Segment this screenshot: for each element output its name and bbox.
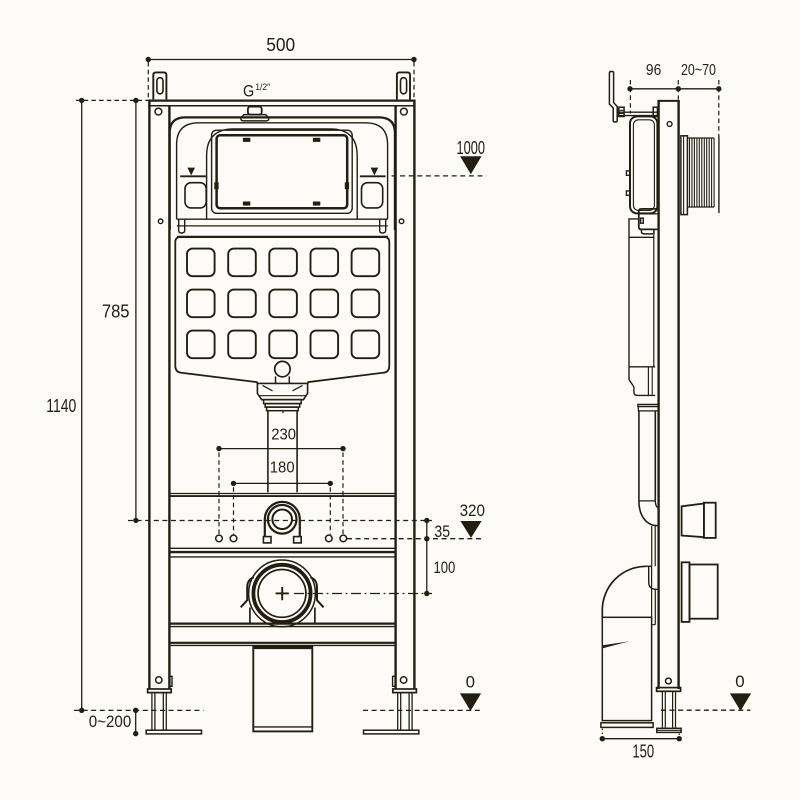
svg-text:100: 100 bbox=[433, 558, 455, 577]
svg-text:150: 150 bbox=[632, 742, 654, 762]
svg-text:0: 0 bbox=[735, 672, 744, 691]
svg-text:0: 0 bbox=[466, 673, 475, 692]
svg-text:96: 96 bbox=[646, 62, 661, 79]
svg-text:35: 35 bbox=[434, 522, 450, 541]
svg-text:180: 180 bbox=[270, 459, 295, 476]
svg-text:1/2″: 1/2″ bbox=[255, 82, 271, 93]
svg-text:1000: 1000 bbox=[457, 137, 486, 158]
svg-text:500: 500 bbox=[266, 34, 295, 55]
svg-text:320: 320 bbox=[460, 501, 485, 520]
svg-text:G: G bbox=[243, 82, 254, 100]
svg-text:230: 230 bbox=[271, 427, 296, 444]
svg-text:0~200: 0~200 bbox=[89, 712, 132, 731]
svg-text:785: 785 bbox=[102, 301, 130, 322]
svg-text:20~70: 20~70 bbox=[681, 62, 716, 79]
svg-text:1140: 1140 bbox=[46, 395, 76, 416]
